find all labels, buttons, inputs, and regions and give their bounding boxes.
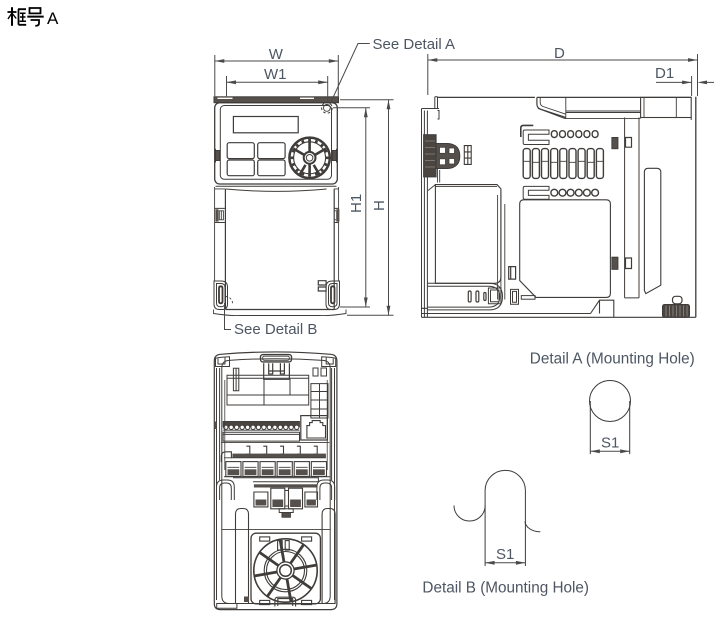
svg-text:Detail B (Mounting Hole): Detail B (Mounting Hole): [422, 580, 589, 597]
svg-text:See Detail B: See Detail B: [234, 321, 317, 338]
svg-text:H: H: [371, 200, 388, 211]
svg-text:W1: W1: [264, 66, 287, 83]
svg-text:H1: H1: [348, 194, 365, 213]
svg-text:S1: S1: [601, 435, 619, 452]
svg-text:W: W: [269, 46, 284, 63]
svg-text:Detail A (Mounting Hole): Detail A (Mounting Hole): [530, 351, 695, 368]
svg-text:See Detail A: See Detail A: [373, 36, 456, 53]
svg-text:S1: S1: [496, 546, 514, 563]
svg-text:A: A: [47, 9, 59, 28]
svg-text:D: D: [554, 45, 565, 62]
svg-text:D1: D1: [655, 65, 674, 82]
